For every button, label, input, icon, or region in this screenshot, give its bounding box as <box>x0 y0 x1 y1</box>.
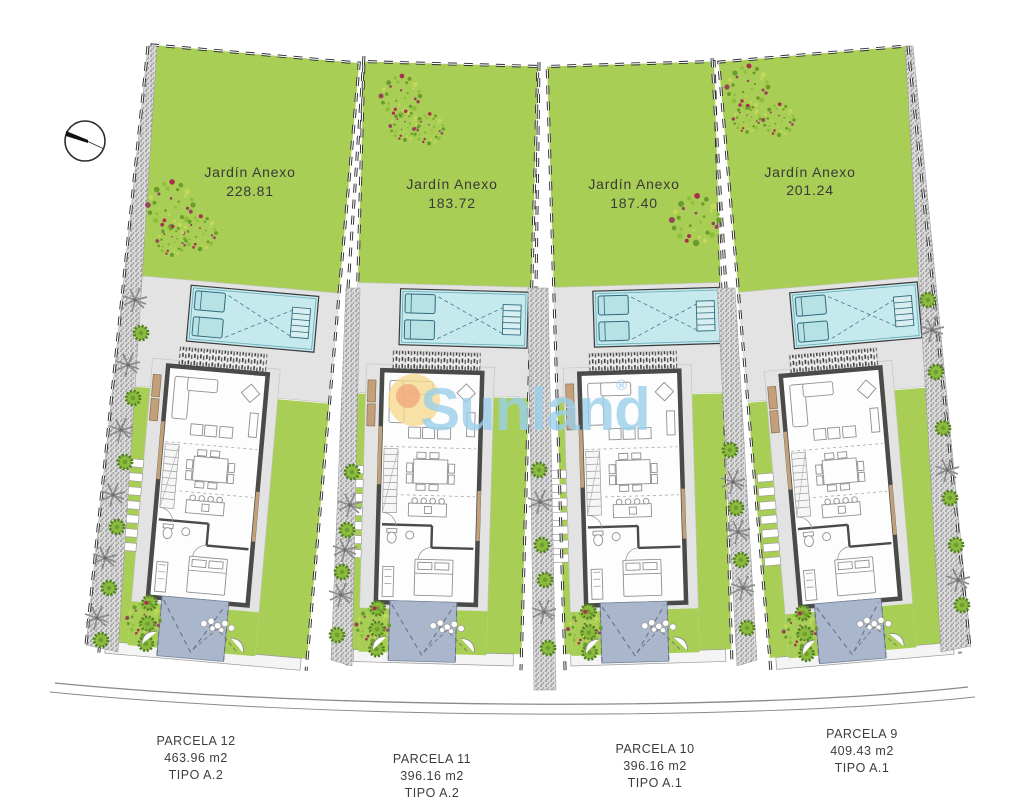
garden-area-value: 201.24 <box>786 182 834 198</box>
garden-label-text: Jardín Anexo <box>764 164 855 180</box>
garden-label-text: Jardín Anexo <box>406 176 497 192</box>
parcel-type: TIPO A.1 <box>628 776 683 790</box>
parcel-type: TIPO A.2 <box>405 786 460 800</box>
parcel-area: 396.16 m2 <box>623 759 687 773</box>
plot-parcela-10 <box>538 62 732 671</box>
parcel-name: PARCELA 9 <box>826 727 898 741</box>
parcel-label-10: PARCELA 10 396.16 m2 TIPO A.1 <box>615 742 694 790</box>
parcel-area: 396.16 m2 <box>400 769 464 783</box>
parcel-label-12: PARCELA 12 463.96 m2 TIPO A.2 <box>156 734 235 782</box>
garden-area-value: 228.81 <box>226 183 274 199</box>
registered-mark: ® <box>616 377 627 394</box>
parcel-type: TIPO A.1 <box>835 761 890 775</box>
parcel-area: 409.43 m2 <box>830 744 894 758</box>
parcel-name: PARCELA 10 <box>615 742 694 756</box>
parcel-name: PARCELA 12 <box>156 734 235 748</box>
parcel-label-9: PARCELA 9 409.43 m2 TIPO A.1 <box>826 727 898 775</box>
garden-area-value: 187.40 <box>610 195 658 211</box>
garden-label-text: Jardín Anexo <box>588 176 679 192</box>
plot-parcela-11 <box>342 61 538 670</box>
garden-label-text: Jardín Anexo <box>204 164 295 180</box>
parcel-label-11: PARCELA 11 396.16 m2 TIPO A.2 <box>393 752 471 800</box>
jardin-anexo-11 <box>358 62 538 288</box>
jardin-anexo-10 <box>547 62 720 288</box>
garden-area-value: 183.72 <box>428 195 476 211</box>
parcel-name: PARCELA 11 <box>393 752 471 766</box>
site-plan: Jardín Anexo 228.81 Jardín Anexo 183.72 … <box>0 0 1024 800</box>
sunland-watermark: Sunland ® <box>388 374 650 443</box>
north-compass-icon <box>65 121 105 161</box>
street <box>50 683 975 714</box>
site-plan-drawing: Jardín Anexo 228.81 Jardín Anexo 183.72 … <box>0 0 1024 800</box>
parcel-area: 463.96 m2 <box>164 751 228 765</box>
parcel-type: TIPO A.2 <box>169 768 224 782</box>
plot-parcela-12 <box>99 45 359 671</box>
